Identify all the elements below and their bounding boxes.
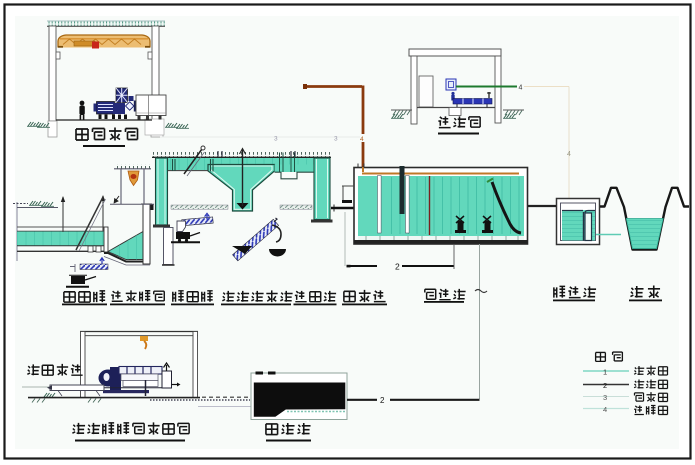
svg-text:1: 1 <box>603 368 607 377</box>
svg-text:4: 4 <box>567 151 571 158</box>
svg-text:3: 3 <box>274 136 278 143</box>
svg-text:2: 2 <box>603 381 607 390</box>
svg-text:4: 4 <box>519 85 523 92</box>
svg-text:3: 3 <box>603 393 607 402</box>
svg-text:3: 3 <box>334 136 338 143</box>
svg-text:4: 4 <box>603 405 607 414</box>
svg-text:2: 2 <box>395 262 400 272</box>
svg-text:2: 2 <box>380 396 385 405</box>
svg-text:4: 4 <box>360 136 364 143</box>
